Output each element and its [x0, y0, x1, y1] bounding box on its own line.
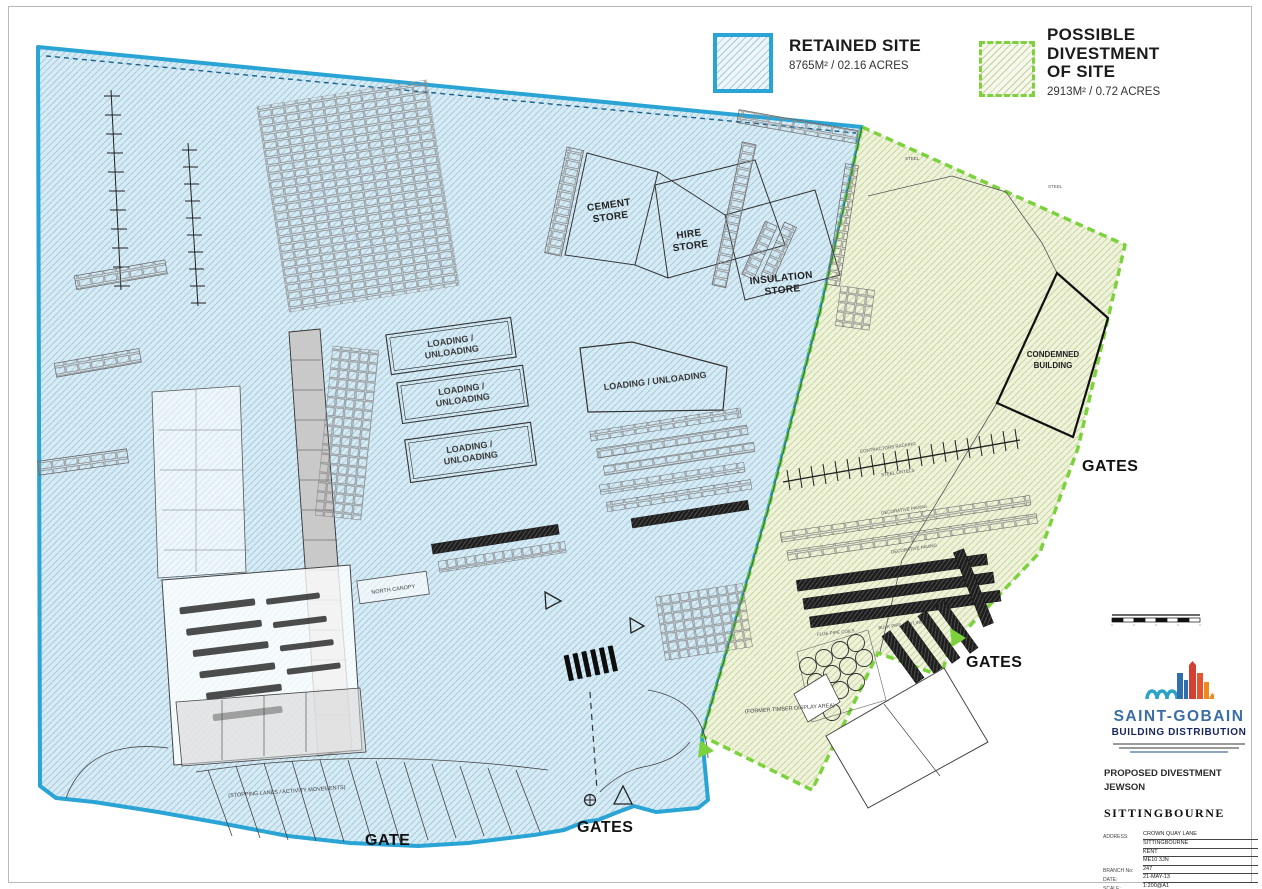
saint-gobain-skyline-icon: [1143, 659, 1215, 701]
title-block: SAINT-GOBAIN BUILDING DISTRIBUTION PROPO…: [1100, 612, 1258, 884]
table-row: KENT: [1103, 849, 1258, 858]
table-row: BRANCH No: 247: [1103, 866, 1258, 875]
saint-gobain-logo: SAINT-GOBAIN BUILDING DISTRIBUTION: [1100, 659, 1258, 753]
site-plan-page: NORTH CANOPY STEEL STEEL: [0, 0, 1262, 889]
gate-label: GATE: [365, 832, 410, 849]
drawing-info-table: ADDRESS: CROWN QUAY LANE SITTINGBOURNE K…: [1103, 832, 1258, 889]
retained-site-swatch: [713, 33, 773, 93]
gates-label-south: GATES: [577, 819, 633, 836]
table-row: SCALE: 1:200@A1: [1103, 883, 1258, 889]
project-title: PROPOSED DIVESTMENT JEWSON: [1104, 767, 1258, 796]
pallet-storage-block: [257, 80, 459, 312]
site-plan-drawing: NORTH CANOPY STEEL STEEL: [0, 0, 1262, 889]
divestment-site-swatch: [979, 41, 1035, 97]
svg-text:BUILDING: BUILDING: [1034, 361, 1073, 370]
divestment-site-legend: POSSIBLE DIVESTMENT OF SITE 2913M² / 0.7…: [1047, 26, 1160, 98]
project-line-1: PROPOSED DIVESTMENT: [1104, 767, 1258, 781]
divestment-site-area: 2913M² / 0.72 ACRES: [1047, 86, 1160, 98]
table-row: ME10 3JN: [1103, 857, 1258, 866]
gates-label-mid: GATES: [966, 654, 1022, 671]
retained-site-legend: RETAINED SITE 8765M² / 02.16 ACRES: [789, 37, 921, 72]
project-line-2: JEWSON: [1104, 781, 1258, 795]
division-name: BUILDING DISTRIBUTION: [1100, 727, 1258, 738]
table-row: ADDRESS: CROWN QUAY LANE: [1103, 832, 1258, 841]
building-lower-rooms: [176, 688, 366, 766]
condemned-building-label: CONDEMNED: [1027, 350, 1080, 359]
scale-bar: [1110, 612, 1210, 628]
project-location: SITTINGBOURNE: [1104, 806, 1258, 821]
table-row: SITTINGBOURNE: [1103, 840, 1258, 849]
table-row: DATE: 21-MAY-13: [1103, 874, 1258, 883]
divestment-site-title: POSSIBLE DIVESTMENT OF SITE: [1047, 26, 1160, 82]
retained-site-title: RETAINED SITE: [789, 37, 921, 56]
retained-site-area: 8765M² / 02.16 ACRES: [789, 60, 921, 72]
steel-label-1: STEEL: [905, 156, 920, 161]
brand-name: SAINT-GOBAIN: [1100, 708, 1258, 726]
contact-lines: [1100, 743, 1258, 753]
gates-label-east: GATES: [1082, 458, 1138, 475]
steel-label-2: STEEL: [1048, 184, 1063, 189]
